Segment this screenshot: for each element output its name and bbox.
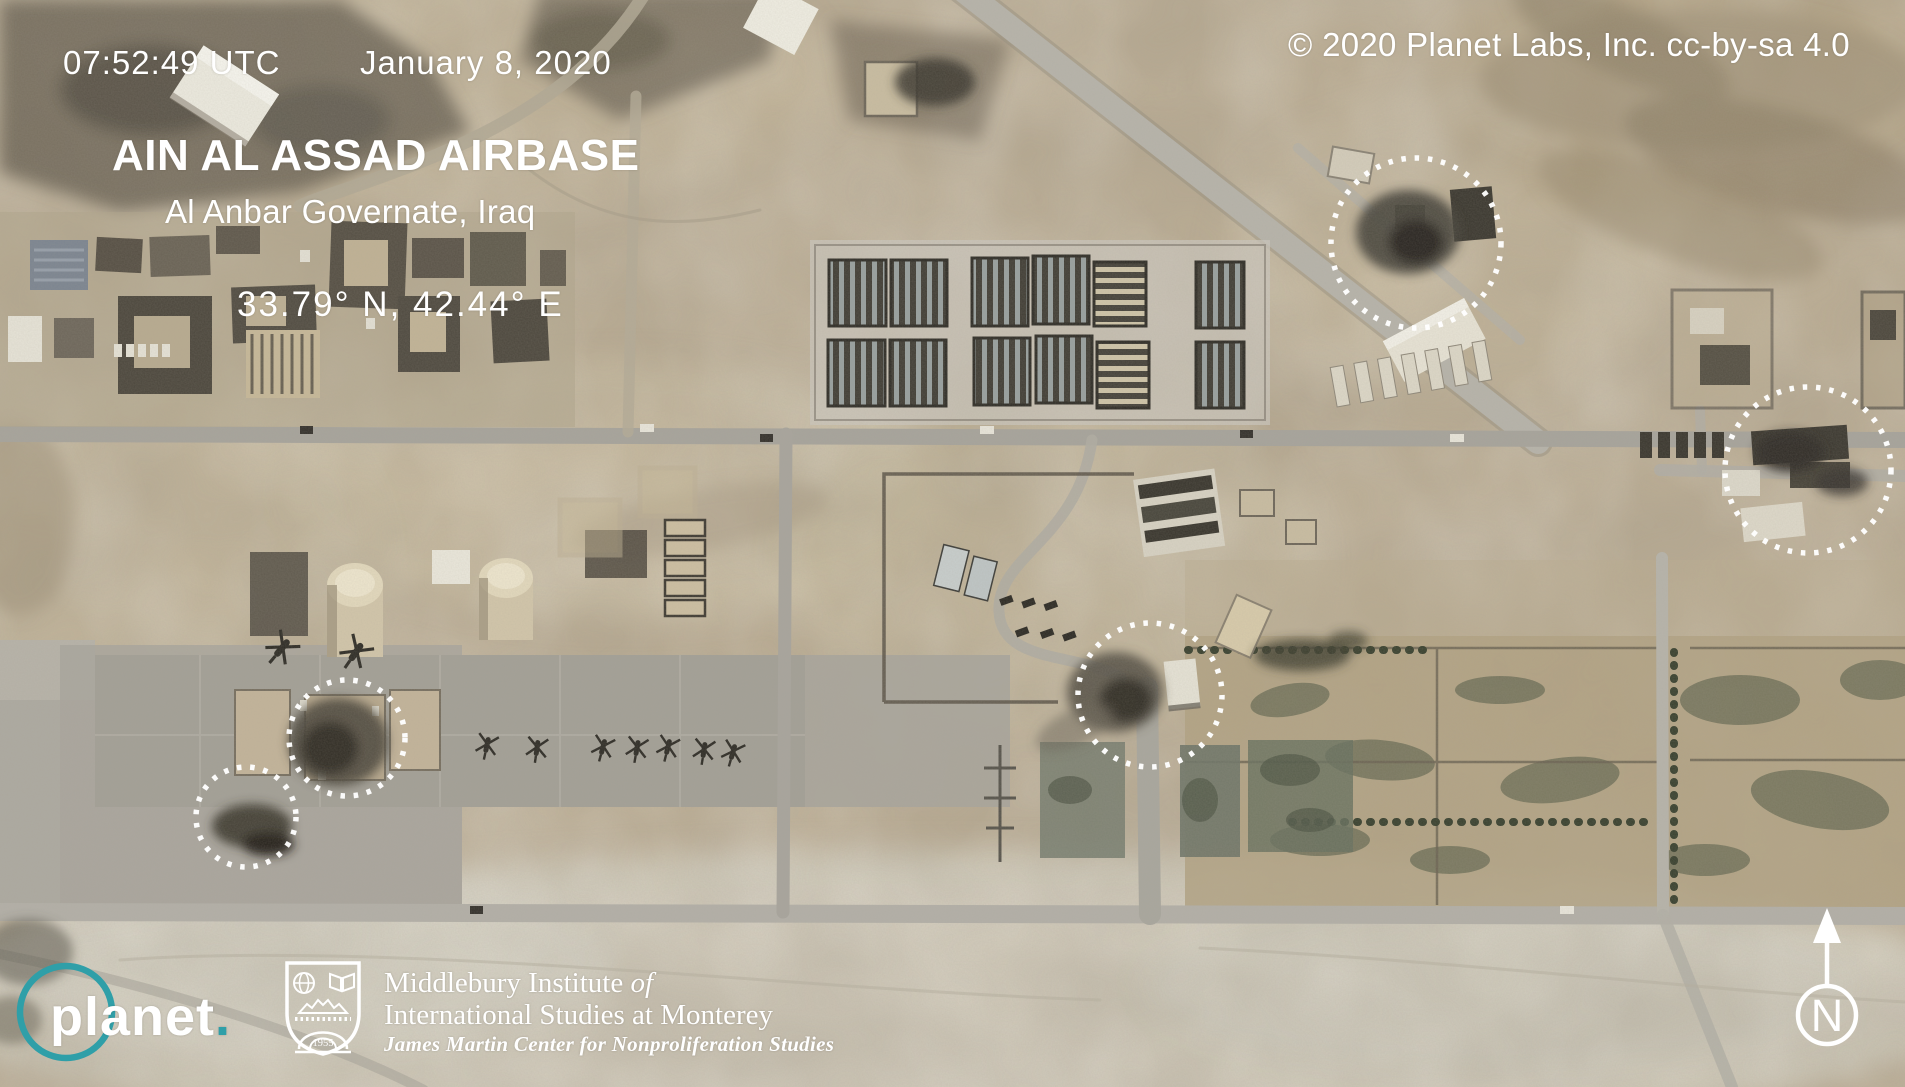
institute-center-line: James Martin Center for Nonproliferation… [384, 1032, 834, 1057]
damage-circles-layer [196, 158, 1891, 867]
institute-name-italic: of [630, 967, 653, 999]
institute-name-regular: Middlebury Institute [384, 967, 630, 999]
middlebury-shield-icon: 1955 [283, 961, 363, 1057]
annotated-satellite-image: 07:52:49 UTC January 8, 2020 © 2020 Plan… [0, 0, 1905, 1087]
page-title: AIN AL ASSAD AIRBASE [112, 131, 639, 181]
planet-wordmark-text: planet [50, 987, 215, 1047]
damage-circle [1331, 158, 1501, 328]
institute-name-line1: Middlebury Institute of [384, 967, 653, 1000]
capture-date-label: January 8, 2020 [360, 44, 612, 82]
location-subtitle: Al Anbar Governate, Iraq [165, 193, 535, 231]
shield-year-label: 1955 [313, 1038, 334, 1049]
planet-wordmark-dot: . [215, 987, 231, 1047]
copyright-label: © 2020 Planet Labs, Inc. cc-by-sa 4.0 [1288, 26, 1850, 64]
coordinates-label: 33.79° N, 42.44° E [237, 285, 564, 325]
mission-facade-icon [299, 1000, 347, 1013]
planet-wordmark: planet. [50, 986, 231, 1048]
damage-circle [1725, 387, 1891, 553]
damage-circle [289, 680, 405, 796]
north-label: N [1811, 990, 1844, 1041]
damage-circle [1078, 623, 1222, 767]
north-compass: N [1768, 898, 1888, 1058]
institute-name-line2: International Studies at Monterey [384, 999, 773, 1032]
book-icon [330, 974, 354, 991]
damage-circle [196, 767, 296, 867]
capture-time-label: 07:52:49 UTC [63, 44, 280, 82]
